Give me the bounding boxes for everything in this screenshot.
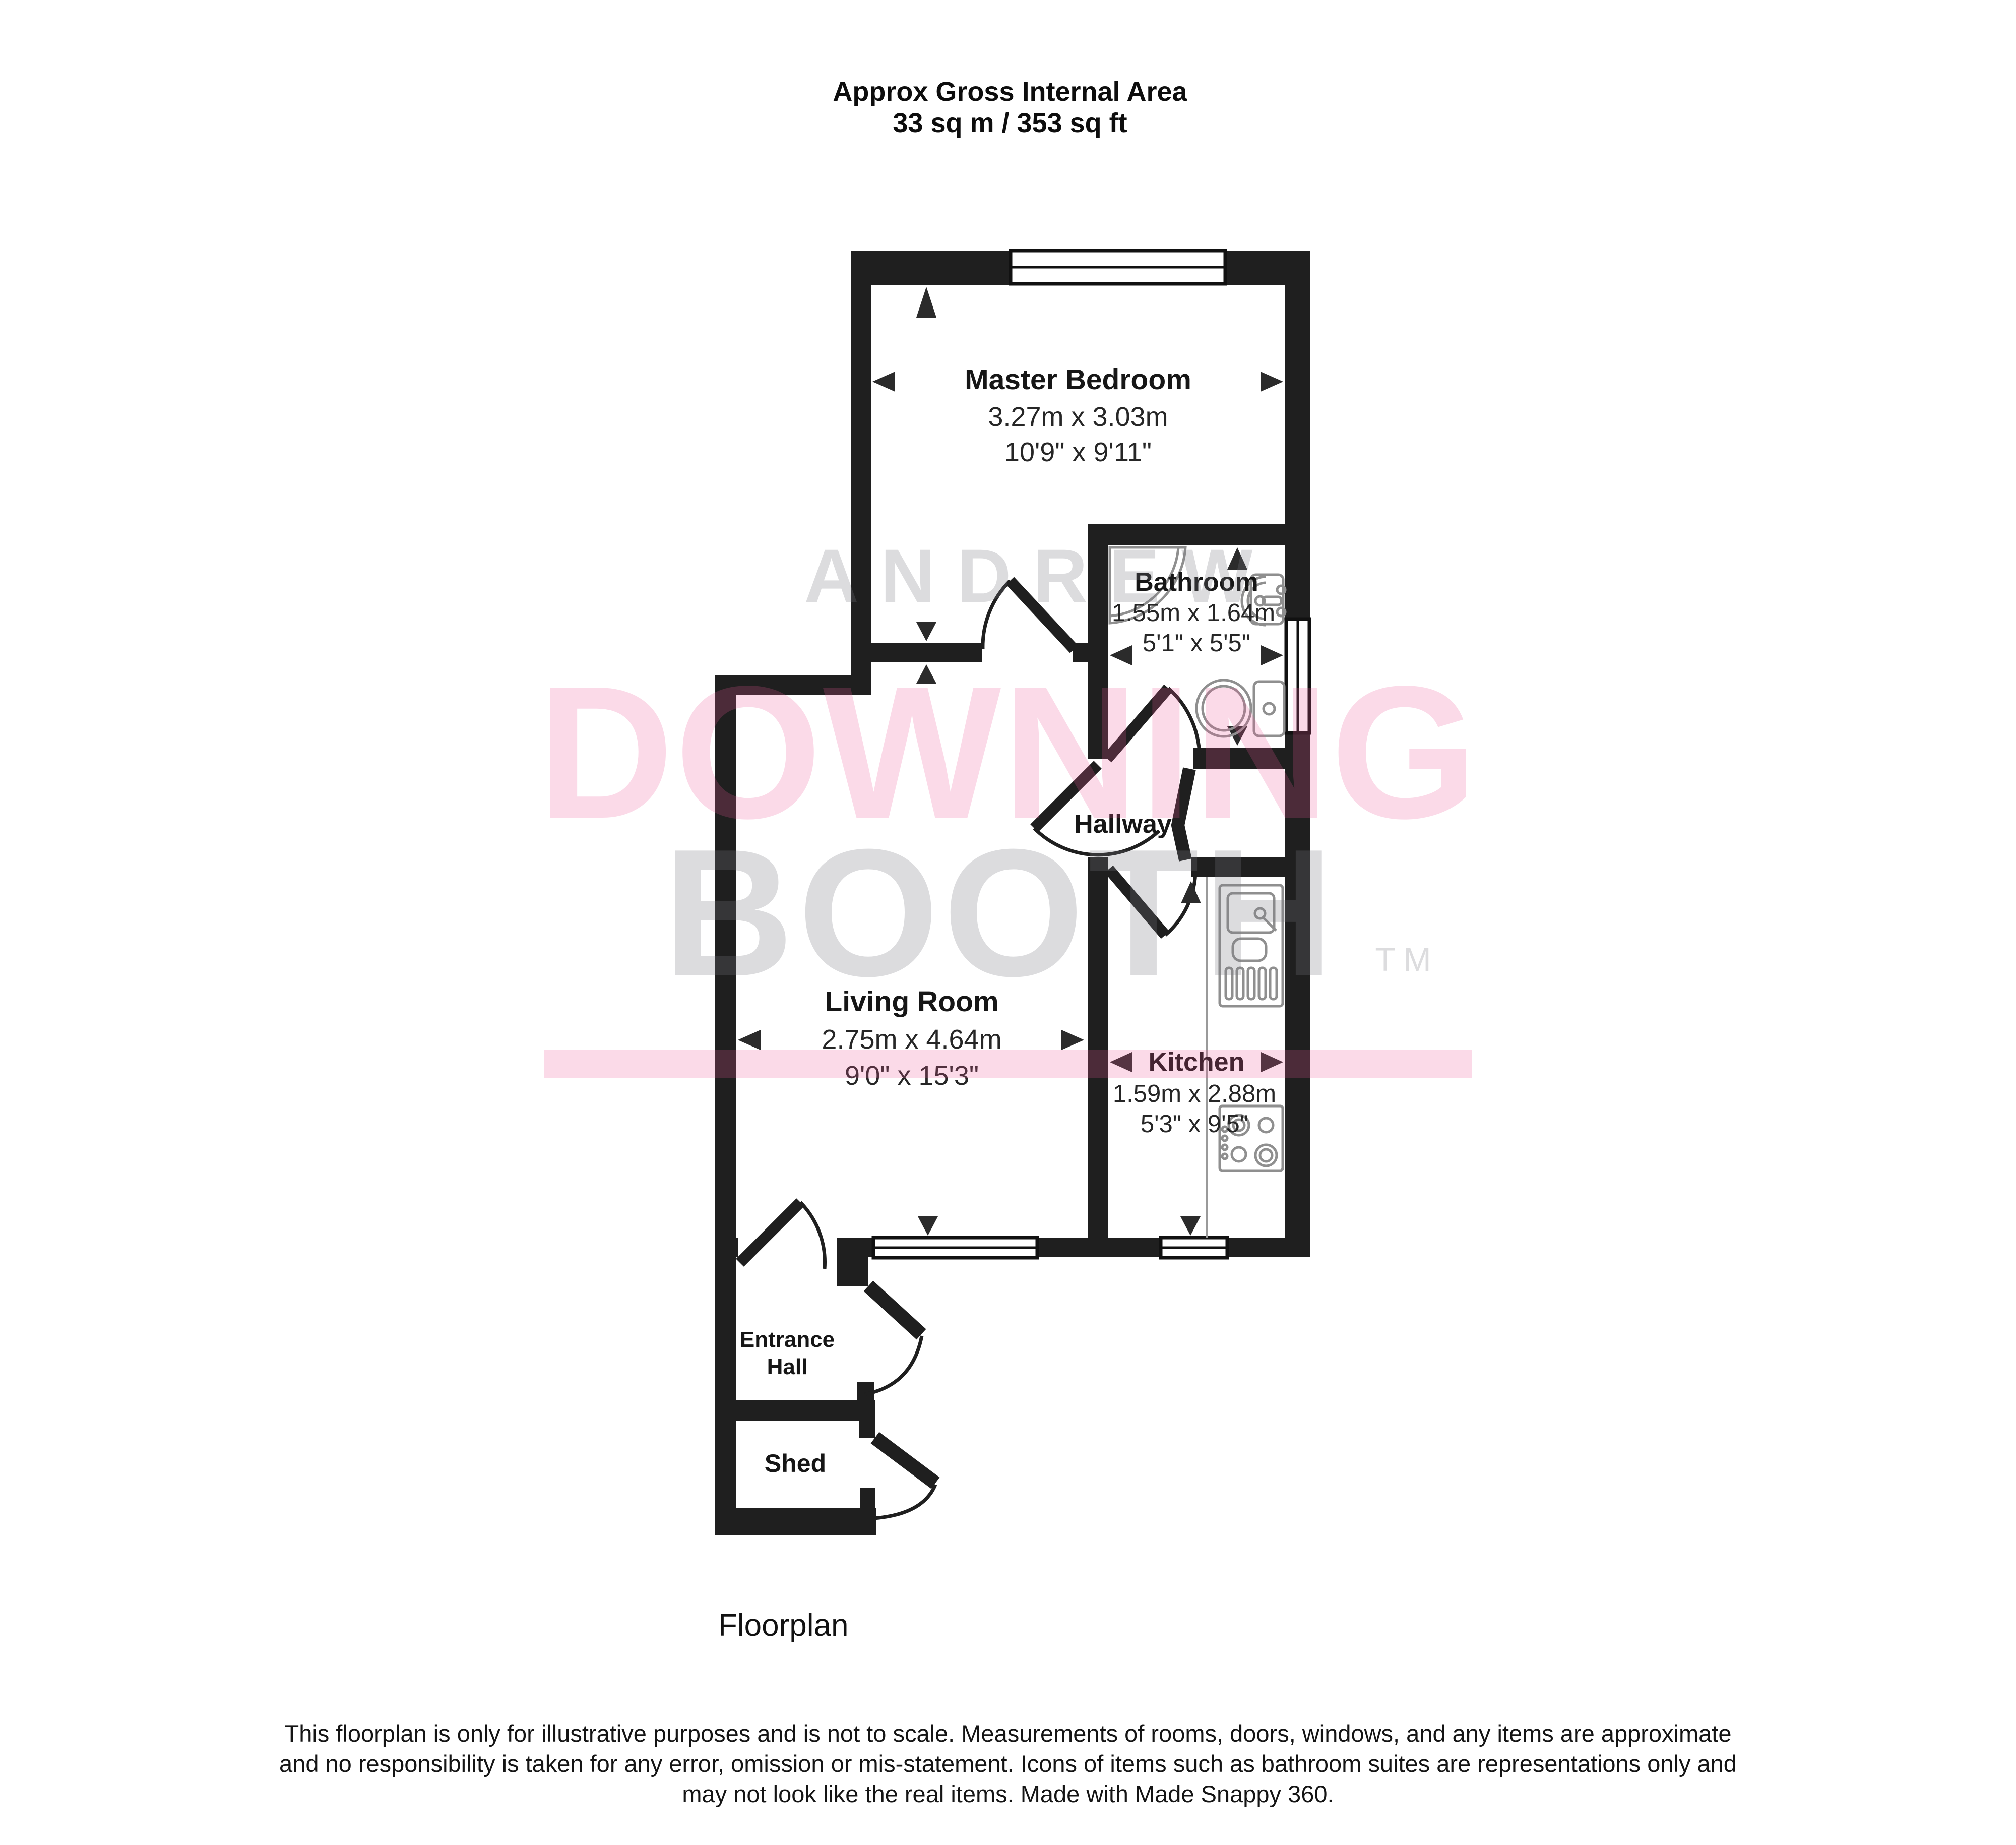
wall-bottom-left-stub bbox=[715, 1238, 738, 1257]
floorplan-page: Approx Gross Internal Area 33 sq m / 353… bbox=[0, 0, 2016, 1845]
living-arrow-down bbox=[918, 1216, 938, 1236]
watermark-booth: BOOTH bbox=[663, 812, 1338, 1014]
bedroom-window bbox=[1011, 251, 1225, 284]
disclaimer-line2: and no responsibility is taken for any e… bbox=[279, 1750, 1737, 1777]
entrance-hall-label-line2: Hall bbox=[767, 1355, 808, 1379]
bedroom-arrow-down bbox=[916, 622, 936, 641]
floorplan-canvas: Approx Gross Internal Area 33 sq m / 353… bbox=[0, 0, 2016, 1845]
wall-shed-bottom bbox=[715, 1508, 876, 1535]
entrance-hall-inner-door bbox=[740, 1202, 825, 1269]
disclaimer-line3: may not look like the real items. Made w… bbox=[682, 1780, 1334, 1807]
bedroom-arrow-up bbox=[916, 287, 936, 318]
title-line2: 33 sq m / 353 sq ft bbox=[893, 108, 1127, 138]
shed-label: Shed bbox=[765, 1449, 826, 1478]
bedroom-metric: 3.27m x 3.03m bbox=[988, 402, 1168, 432]
bedroom-arrow-right bbox=[1261, 372, 1283, 392]
living-room-window bbox=[873, 1238, 1037, 1258]
disclaimer: This floorplan is only for illustrative … bbox=[279, 1720, 1737, 1807]
wall-bedroom-left bbox=[851, 251, 871, 695]
wall-entrance-pillar bbox=[837, 1238, 868, 1286]
kitchen-imperial: 5'3" x 9'5" bbox=[1141, 1111, 1248, 1138]
front-door bbox=[865, 1286, 922, 1394]
watermark: ANDREW DOWNING BOOTH TM bbox=[537, 533, 1479, 1078]
watermark-underline-bar bbox=[544, 1050, 1472, 1078]
wall-entrance-shed-divider bbox=[715, 1400, 875, 1421]
title-line1: Approx Gross Internal Area bbox=[833, 77, 1187, 107]
bedroom-arrow-left bbox=[872, 372, 895, 392]
living-arrow-right bbox=[1061, 1030, 1084, 1050]
bedroom-label: Master Bedroom bbox=[965, 363, 1191, 396]
watermark-andrew: ANDREW bbox=[804, 533, 1275, 618]
wall-shed-jamb-top bbox=[859, 1421, 875, 1438]
entrance-hall-label-line1: Entrance bbox=[740, 1327, 835, 1352]
watermark-tm: TM bbox=[1375, 941, 1439, 978]
wall-shed-jamb-bottom bbox=[860, 1488, 875, 1508]
living-arrow-left bbox=[738, 1030, 761, 1050]
disclaimer-line1: This floorplan is only for illustrative … bbox=[285, 1720, 1732, 1747]
kitchen-arrow-down bbox=[1180, 1216, 1201, 1236]
bedroom-imperial: 10'9" x 9'11" bbox=[1004, 437, 1152, 467]
shed-door bbox=[874, 1438, 935, 1518]
kitchen-metric: 1.59m x 2.88m bbox=[1113, 1080, 1276, 1108]
caption: Floorplan bbox=[718, 1608, 848, 1643]
kitchen-window bbox=[1161, 1238, 1227, 1258]
